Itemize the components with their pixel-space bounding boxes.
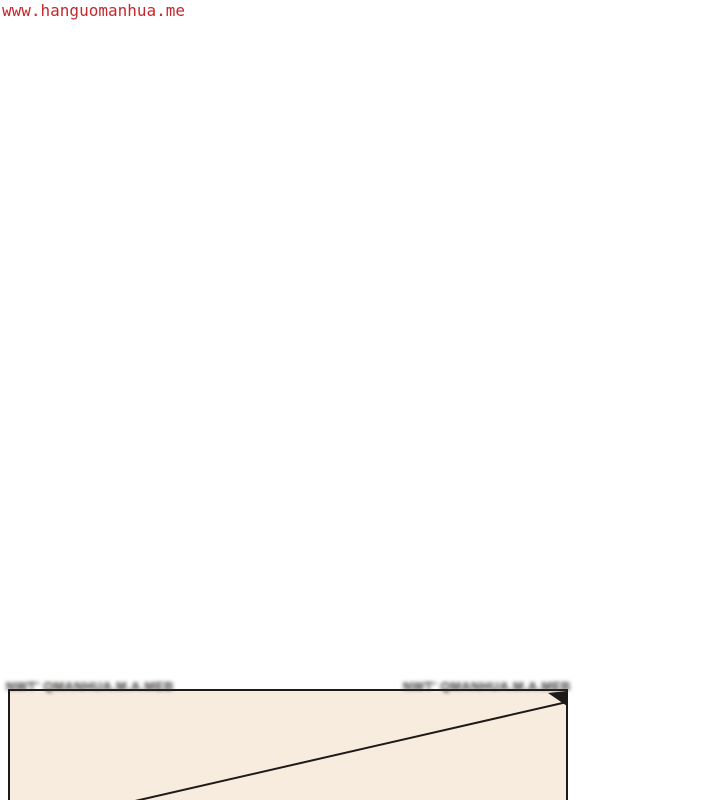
blurred-caption-left: NWT' QMANHUA.M.A.MEB: [6, 681, 174, 694]
panel-background: [9, 690, 568, 800]
blurred-caption-right: NWT' QMANHUA.M.A.MEB: [403, 681, 571, 694]
comic-panel-image: NWT' QMANHUA.M.A.MEB NWT' QMANHUA.M.A.ME…: [0, 0, 720, 800]
